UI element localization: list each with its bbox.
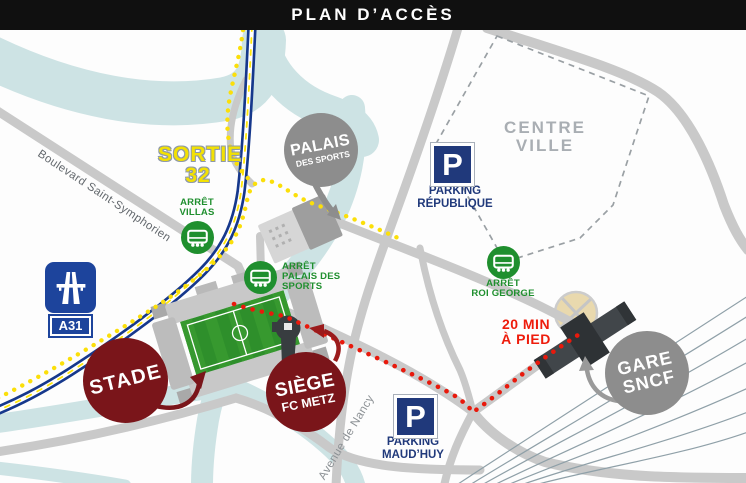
poi-palais-des-sports: PALAIS DES SPORTS — [284, 113, 358, 187]
poi-gare-sncf: GARE SNCF — [605, 331, 689, 415]
bus-stop-villas-label: ARRÊT VILLAS — [172, 198, 222, 218]
poi-siege-fc-metz: SIÈGE FC METZ — [266, 352, 346, 432]
bus-stop-palais-label: ARRÊT PALAIS DES SPORTS — [282, 262, 340, 292]
a31-motorway-sign: A31 — [45, 262, 96, 336]
parking-republique-sign: P — [431, 143, 474, 186]
stade-label: STADE — [87, 360, 164, 400]
bus-stop-roi-george-label: ARRÊT ROI GEORGE — [463, 279, 543, 299]
parking-republique-label: PARKING RÉPUBLIQUE — [405, 185, 505, 210]
bus-stop-palais-des-sports — [244, 261, 277, 294]
parking-icon: P — [442, 147, 463, 183]
parking-icon: P — [405, 399, 426, 435]
walk-time-note: 20 MIN À PIED — [491, 317, 561, 347]
parking-maudhuy-label: PARKING MAUD’HUY — [363, 436, 463, 461]
exit-sign-sortie-32: SORTIE 32 — [158, 144, 238, 186]
bus-icon — [247, 264, 274, 291]
motorway-icon — [45, 262, 96, 313]
a31-label: A31 — [50, 316, 92, 336]
bus-icon — [184, 224, 211, 251]
access-map-page: PLAN D’ACCÈS SORTIE 32 Boulevard Saint-S… — [0, 0, 746, 483]
header-bar: PLAN D’ACCÈS — [0, 0, 746, 30]
poi-stade: STADE — [83, 338, 168, 423]
bus-stop-roi-george — [487, 246, 520, 279]
centre-ville-label: CENTRE VILLE — [495, 119, 595, 155]
page-title: PLAN D’ACCÈS — [291, 5, 455, 25]
bus-stop-villas — [181, 221, 214, 254]
parking-maudhuy-sign: P — [394, 395, 437, 438]
bus-icon — [490, 249, 517, 276]
